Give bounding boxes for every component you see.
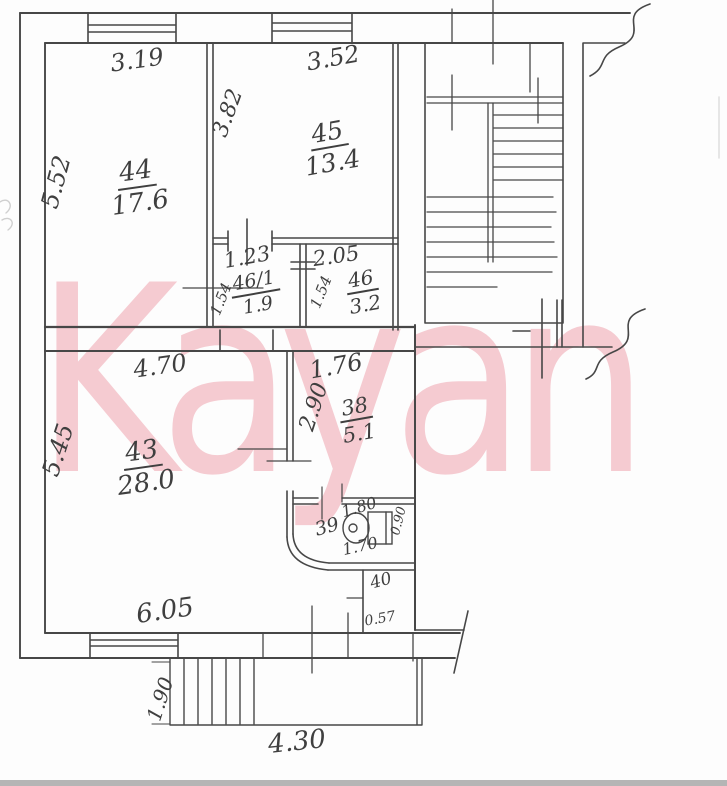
room-46-area: 3.2 [347,290,382,318]
inter-unit-doorway [220,330,273,351]
room-45-label: 45 13.4 [298,115,363,181]
dimension-ticks-top [452,0,538,130]
room-38-area: 5.1 [341,418,378,447]
room-46-1-label: 46/1 1.9 [228,268,284,321]
scan-edge [0,780,727,786]
break-mark-bottom-icon [454,611,468,673]
window-icon [88,13,352,43]
bathroom-walls [267,351,415,570]
porch-steps [152,658,422,725]
window-icon [90,633,178,658]
stairs-steps [427,97,563,287]
room-44-label: 44 17.6 [105,154,171,221]
closet-walls [347,570,363,633]
floor-plan-page: Kayan [0,0,727,786]
room-43-label: 43 28.0 [111,434,177,501]
dim-porch-width: 4.30 [267,724,328,760]
break-mark-top-right-icon [590,4,650,76]
break-mark-middle-right-icon [586,309,645,379]
stairwell-walls [415,43,625,378]
